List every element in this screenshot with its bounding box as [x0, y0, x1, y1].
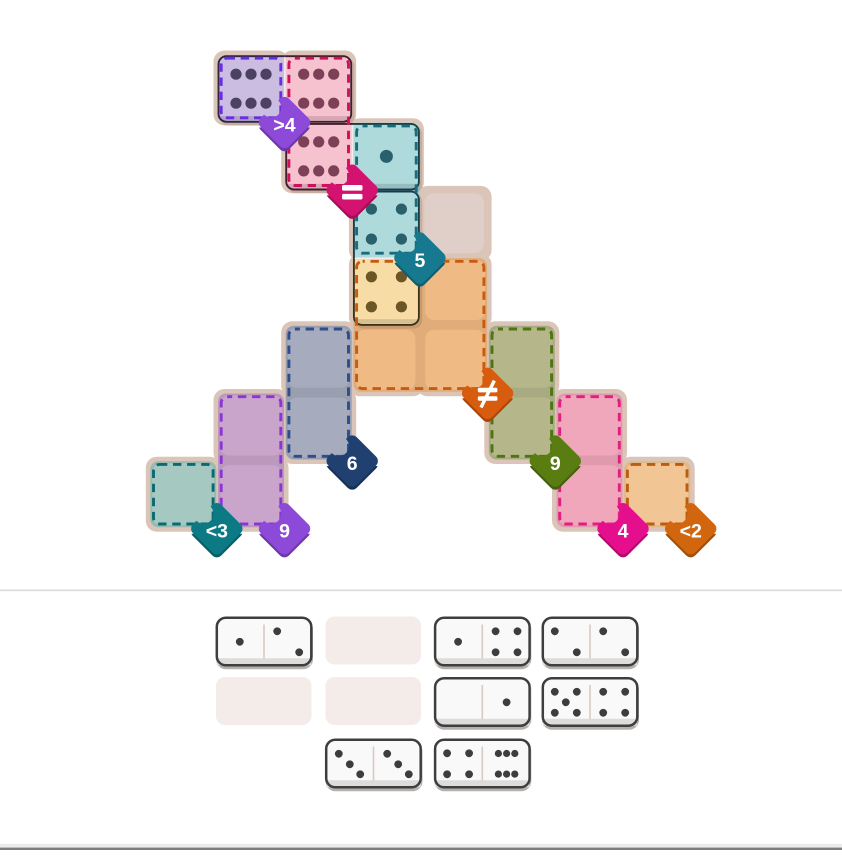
svg-text:9: 9 [279, 521, 290, 543]
svg-text:9: 9 [550, 453, 561, 475]
svg-text:<3: <3 [206, 521, 228, 543]
svg-text:>4: >4 [273, 115, 295, 137]
svg-text:4: 4 [618, 521, 629, 543]
svg-text:<2: <2 [680, 521, 702, 543]
svg-text:5: 5 [414, 250, 425, 272]
svg-text:6: 6 [347, 453, 358, 475]
